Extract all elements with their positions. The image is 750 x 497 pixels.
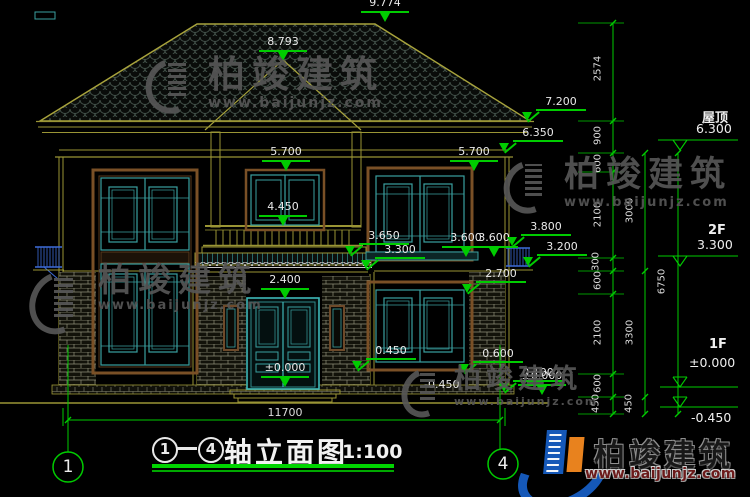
- drawing-scale: 1:100: [342, 441, 402, 463]
- elevation-drawing: [0, 0, 750, 497]
- logo-building2-icon: [566, 437, 584, 472]
- title-axis-start-bubble: 1: [152, 437, 178, 463]
- window-center-2f: [246, 170, 324, 230]
- title-underline-thin: [152, 470, 394, 472]
- logo-building-icon: [543, 430, 567, 474]
- window-right-2f: [366, 168, 478, 260]
- axis-bubble-4: 4: [488, 454, 518, 474]
- title-axis-dash: [177, 447, 197, 450]
- ac-rack-left: [35, 247, 62, 279]
- company-logo: 柏竣建筑 www.baijunjz.com: [505, 424, 750, 496]
- overall-width-dimension: 11700: [250, 406, 320, 419]
- company-url: www.baijunjz.com: [585, 466, 736, 482]
- porch-canopy: [192, 253, 372, 272]
- window-right-1f: [368, 282, 472, 370]
- edge-fragment: [35, 12, 55, 19]
- title-axis-end-bubble: 4: [198, 437, 224, 463]
- title-underline-thick: [152, 464, 394, 468]
- cad-elevation-screenshot: 9.7748.7937.2006.3505.7005.7004.4503.650…: [0, 0, 750, 497]
- axis-bubble-1: 1: [53, 457, 83, 477]
- ac-rack-right: [506, 248, 530, 266]
- main-hip-roof: [36, 24, 534, 157]
